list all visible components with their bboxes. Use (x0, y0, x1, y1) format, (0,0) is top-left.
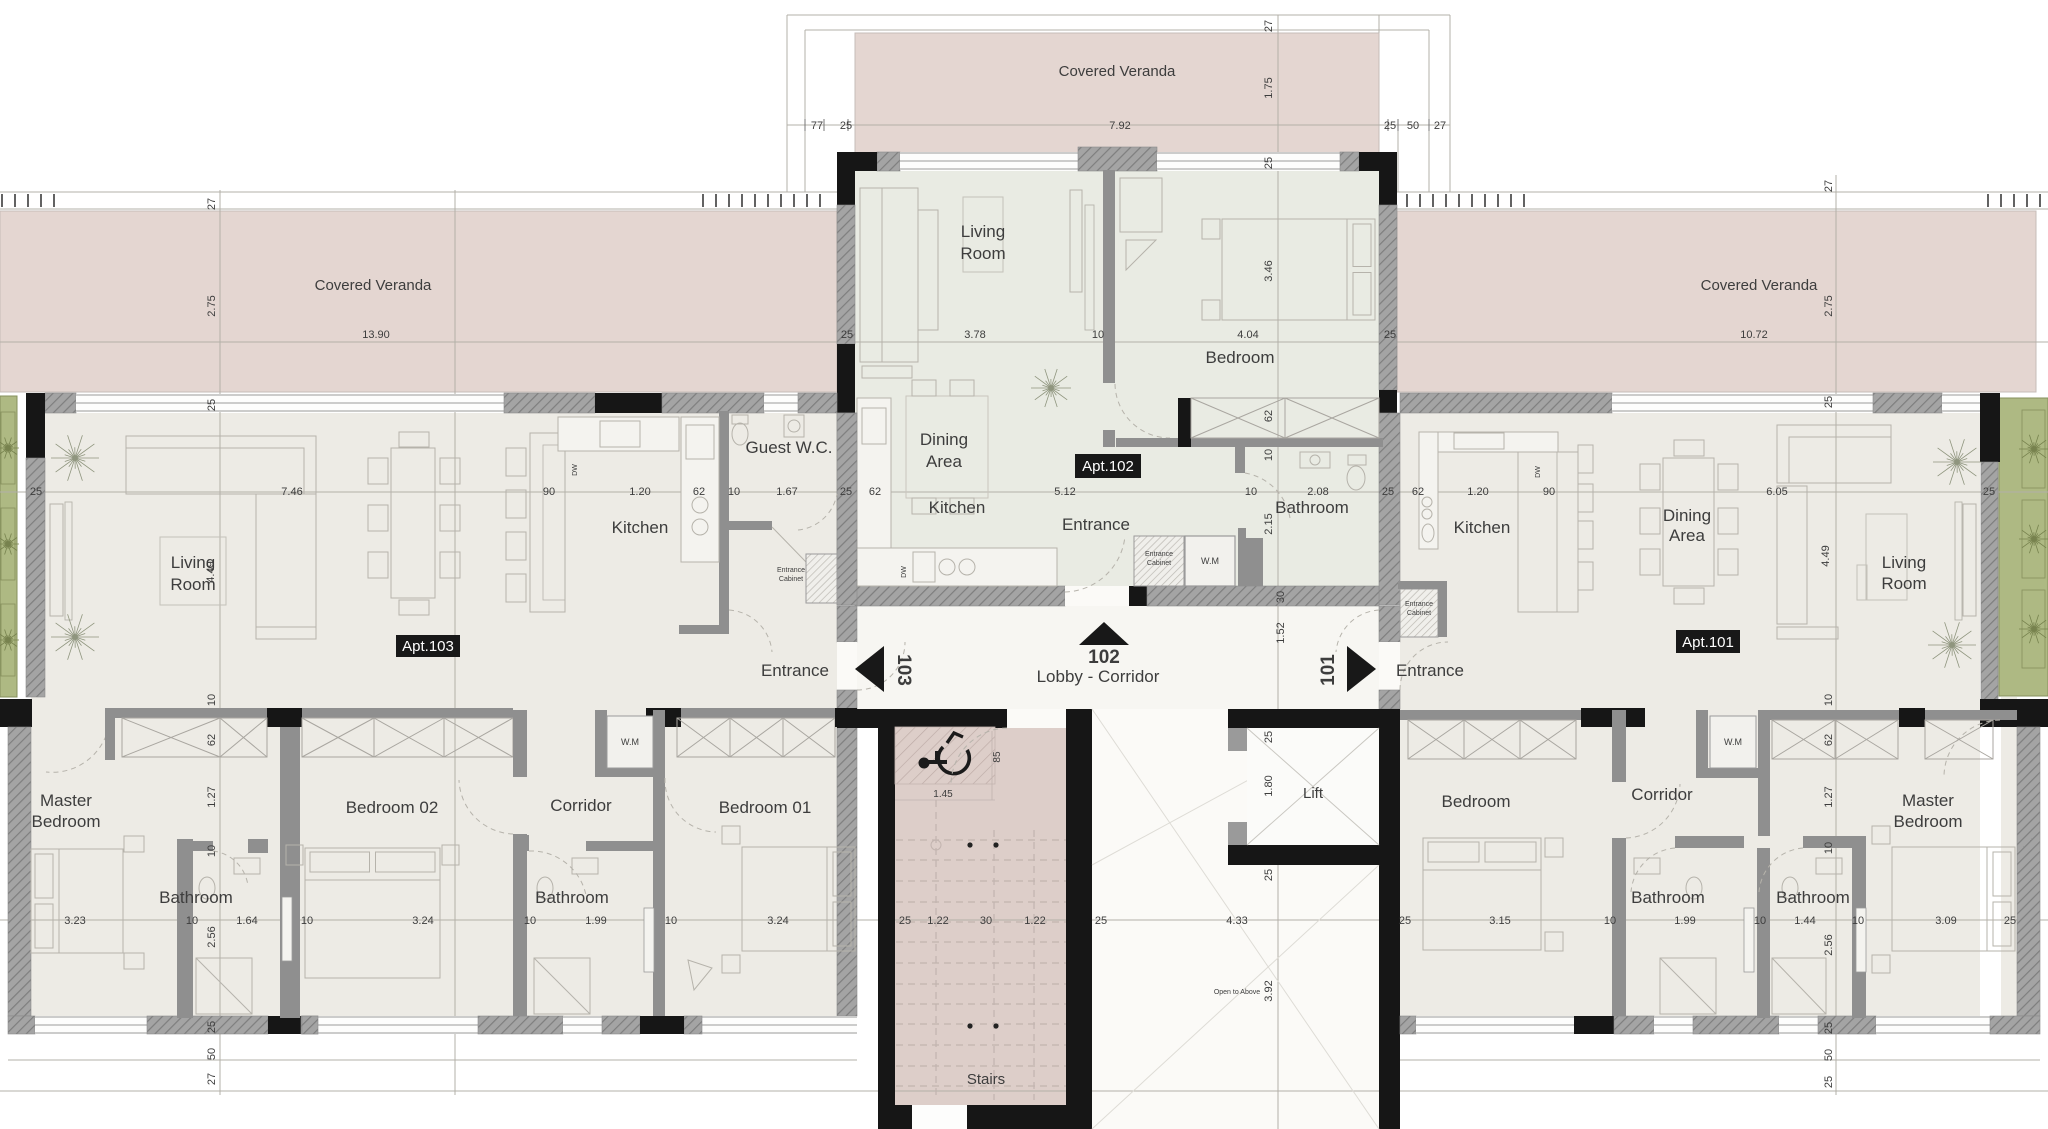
svg-text:4.04: 4.04 (1237, 329, 1258, 341)
svg-text:DW: DW (901, 566, 908, 578)
svg-text:Cabinet: Cabinet (1147, 560, 1171, 567)
svg-text:27: 27 (1434, 120, 1446, 132)
svg-text:3.24: 3.24 (767, 915, 788, 927)
svg-text:10: 10 (1754, 915, 1766, 927)
svg-text:Guest W.C.: Guest W.C. (746, 438, 833, 457)
svg-text:Entrance: Entrance (761, 661, 829, 680)
svg-text:W.M: W.M (1724, 737, 1742, 747)
svg-text:30: 30 (980, 915, 992, 927)
svg-text:W.M: W.M (621, 737, 639, 747)
svg-text:Corridor: Corridor (1631, 785, 1693, 804)
svg-text:Bathroom: Bathroom (1275, 498, 1349, 517)
svg-text:2.08: 2.08 (1307, 486, 1328, 498)
svg-text:10: 10 (1852, 915, 1864, 927)
svg-text:50: 50 (1823, 1049, 1835, 1061)
svg-text:50: 50 (1407, 120, 1419, 132)
svg-text:10: 10 (1263, 449, 1275, 461)
svg-text:Master: Master (40, 791, 92, 810)
svg-text:25: 25 (1823, 1076, 1835, 1088)
svg-text:25: 25 (1983, 486, 1995, 498)
svg-text:Master: Master (1902, 791, 1954, 810)
svg-text:2.56: 2.56 (206, 926, 218, 947)
svg-text:Room: Room (1881, 574, 1926, 593)
svg-text:102: 102 (1088, 647, 1120, 668)
svg-text:10: 10 (1092, 329, 1104, 341)
svg-text:10: 10 (1245, 486, 1257, 498)
svg-text:Bathroom: Bathroom (159, 888, 233, 907)
svg-text:Bedroom 02: Bedroom 02 (346, 798, 439, 817)
svg-text:2.56: 2.56 (1823, 934, 1835, 955)
svg-text:Entrance: Entrance (1062, 515, 1130, 534)
svg-text:62: 62 (1412, 486, 1424, 498)
svg-text:3.92: 3.92 (1263, 980, 1275, 1001)
svg-text:1.22: 1.22 (927, 915, 948, 927)
svg-text:Entrance: Entrance (1145, 551, 1173, 558)
svg-text:10: 10 (206, 694, 218, 706)
svg-text:Bedroom: Bedroom (1206, 348, 1275, 367)
svg-text:25: 25 (1823, 1022, 1835, 1034)
svg-text:Open to Above: Open to Above (1214, 989, 1260, 996)
svg-text:77: 77 (811, 120, 823, 132)
svg-text:25: 25 (841, 329, 853, 341)
svg-text:27: 27 (1263, 20, 1275, 32)
svg-text:Cabinet: Cabinet (1407, 610, 1431, 617)
svg-text:Bathroom: Bathroom (1776, 888, 1850, 907)
svg-text:2.75: 2.75 (206, 295, 218, 316)
svg-text:25: 25 (840, 120, 852, 132)
svg-text:Dining: Dining (1663, 506, 1711, 525)
svg-text:10: 10 (186, 915, 198, 927)
svg-text:3.78: 3.78 (964, 329, 985, 341)
svg-text:10: 10 (1604, 915, 1616, 927)
svg-text:Bathroom: Bathroom (1631, 888, 1705, 907)
svg-text:3.15: 3.15 (1489, 915, 1510, 927)
svg-text:Apt.101: Apt.101 (1682, 634, 1734, 651)
svg-text:25: 25 (1095, 915, 1107, 927)
svg-text:85: 85 (992, 751, 1003, 763)
svg-text:Lift: Lift (1303, 785, 1324, 802)
svg-text:1.22: 1.22 (1024, 915, 1045, 927)
svg-text:25: 25 (899, 915, 911, 927)
svg-text:90: 90 (543, 486, 555, 498)
svg-text:62: 62 (1823, 734, 1835, 746)
svg-text:3.09: 3.09 (1935, 915, 1956, 927)
svg-text:10: 10 (665, 915, 677, 927)
svg-text:Area: Area (926, 452, 962, 471)
svg-text:27: 27 (206, 198, 218, 210)
svg-text:2.75: 2.75 (1823, 295, 1835, 316)
svg-text:1.64: 1.64 (236, 915, 257, 927)
svg-text:10.72: 10.72 (1740, 329, 1768, 341)
svg-text:Dining: Dining (920, 430, 968, 449)
svg-text:25: 25 (30, 486, 42, 498)
svg-text:Bedroom: Bedroom (1442, 792, 1511, 811)
svg-text:13.90: 13.90 (362, 329, 390, 341)
svg-text:25: 25 (1384, 120, 1396, 132)
svg-text:90: 90 (1543, 486, 1555, 498)
svg-text:62: 62 (206, 734, 218, 746)
svg-text:3.46: 3.46 (1263, 260, 1275, 281)
svg-text:DW: DW (572, 464, 579, 476)
svg-text:4.49: 4.49 (1820, 545, 1832, 566)
svg-text:1.75: 1.75 (1263, 77, 1275, 98)
svg-text:4.33: 4.33 (1226, 915, 1247, 927)
svg-text:Bathroom: Bathroom (535, 888, 609, 907)
svg-text:62: 62 (693, 486, 705, 498)
svg-text:Entrance: Entrance (777, 567, 805, 574)
svg-text:25: 25 (206, 399, 218, 411)
svg-text:62: 62 (869, 486, 881, 498)
svg-text:1.20: 1.20 (629, 486, 650, 498)
svg-text:Stairs: Stairs (967, 1071, 1005, 1088)
svg-text:1.52: 1.52 (1275, 622, 1287, 643)
svg-text:27: 27 (1823, 180, 1835, 192)
svg-text:1.44: 1.44 (1794, 915, 1815, 927)
svg-text:1.27: 1.27 (206, 786, 218, 807)
svg-text:Living: Living (961, 222, 1005, 241)
svg-text:1.99: 1.99 (1674, 915, 1695, 927)
svg-text:103: 103 (893, 654, 914, 686)
svg-text:Cabinet: Cabinet (779, 576, 803, 583)
svg-text:25: 25 (1384, 329, 1396, 341)
svg-text:1.27: 1.27 (1823, 786, 1835, 807)
svg-text:25: 25 (1382, 486, 1394, 498)
svg-text:Entrance: Entrance (1396, 661, 1464, 680)
svg-text:10: 10 (524, 915, 536, 927)
svg-text:Bedroom 01: Bedroom 01 (719, 798, 812, 817)
svg-text:Bedroom: Bedroom (1894, 812, 1963, 831)
svg-text:10: 10 (1823, 842, 1835, 854)
svg-text:27: 27 (206, 1073, 218, 1085)
svg-text:1.99: 1.99 (585, 915, 606, 927)
svg-text:50: 50 (206, 1048, 218, 1060)
svg-text:101: 101 (1318, 654, 1339, 686)
svg-text:Covered Veranda: Covered Veranda (1059, 63, 1176, 80)
svg-text:Area: Area (1669, 526, 1705, 545)
svg-text:10: 10 (1823, 694, 1835, 706)
svg-text:Kitchen: Kitchen (612, 518, 669, 537)
svg-text:25: 25 (1263, 157, 1275, 169)
svg-text:W.M: W.M (1201, 556, 1219, 566)
svg-text:Room: Room (960, 244, 1005, 263)
svg-text:25: 25 (1399, 915, 1411, 927)
svg-text:Corridor: Corridor (550, 796, 612, 815)
svg-text:3.24: 3.24 (412, 915, 433, 927)
svg-text:4.49: 4.49 (205, 561, 217, 582)
svg-text:1.45: 1.45 (933, 789, 953, 800)
svg-text:Kitchen: Kitchen (1454, 518, 1511, 537)
svg-text:62: 62 (1263, 410, 1275, 422)
svg-text:DW: DW (1535, 466, 1542, 478)
svg-text:25: 25 (1263, 731, 1275, 743)
svg-text:7.92: 7.92 (1109, 120, 1130, 132)
svg-text:25: 25 (1823, 396, 1835, 408)
svg-text:30: 30 (1275, 591, 1287, 603)
svg-text:10: 10 (206, 845, 218, 857)
svg-text:3.23: 3.23 (64, 915, 85, 927)
svg-text:1.67: 1.67 (776, 486, 797, 498)
svg-text:25: 25 (840, 486, 852, 498)
svg-text:25: 25 (206, 1021, 218, 1033)
svg-text:Covered Veranda: Covered Veranda (315, 277, 432, 294)
svg-text:1.20: 1.20 (1467, 486, 1488, 498)
svg-text:6.05: 6.05 (1766, 486, 1787, 498)
svg-text:Covered Veranda: Covered Veranda (1701, 277, 1818, 294)
svg-text:2.15: 2.15 (1263, 513, 1275, 534)
svg-text:25: 25 (2004, 915, 2016, 927)
svg-text:1.80: 1.80 (1263, 775, 1275, 796)
svg-text:10: 10 (728, 486, 740, 498)
svg-text:Entrance: Entrance (1405, 601, 1433, 608)
svg-text:Kitchen: Kitchen (929, 498, 986, 517)
svg-text:Bedroom: Bedroom (32, 812, 101, 831)
svg-text:7.46: 7.46 (281, 486, 302, 498)
svg-text:10: 10 (301, 915, 313, 927)
svg-text:25: 25 (1263, 869, 1275, 881)
svg-text:Apt.102: Apt.102 (1082, 458, 1134, 475)
svg-text:Living: Living (1882, 553, 1926, 572)
svg-text:Lobby - Corridor: Lobby - Corridor (1037, 667, 1160, 686)
svg-text:5.12: 5.12 (1054, 486, 1075, 498)
svg-text:Apt.103: Apt.103 (402, 638, 454, 655)
